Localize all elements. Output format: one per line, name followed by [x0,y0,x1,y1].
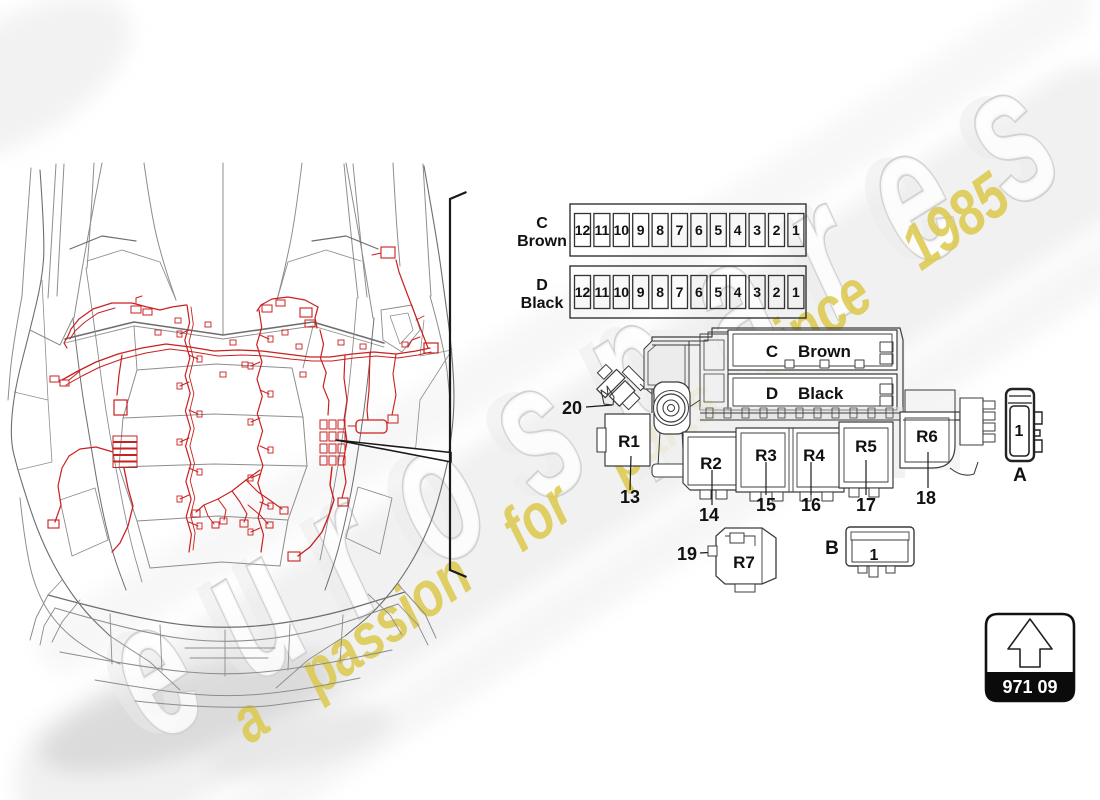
svg-text:Brown: Brown [517,233,567,250]
svg-text:R1: R1 [618,432,640,451]
svg-text:Black: Black [798,384,844,403]
svg-text:5: 5 [714,222,722,238]
svg-text:Brown: Brown [798,342,851,361]
svg-text:2: 2 [773,284,781,300]
svg-text:19: 19 [677,544,697,564]
svg-text:8: 8 [656,284,664,300]
svg-text:4: 4 [734,222,742,238]
svg-text:18: 18 [916,488,936,508]
svg-text:6: 6 [695,284,703,300]
svg-text:11: 11 [594,284,609,300]
svg-text:7: 7 [676,284,684,300]
svg-text:5: 5 [714,284,722,300]
svg-text:3: 3 [753,222,761,238]
svg-text:A: A [1013,465,1027,486]
svg-text:1: 1 [792,284,800,300]
svg-text:14: 14 [699,505,719,525]
svg-text:4: 4 [734,284,742,300]
svg-text:7: 7 [676,222,684,238]
svg-text:C: C [536,215,548,232]
svg-text:R2: R2 [700,454,722,473]
svg-text:1: 1 [870,547,879,564]
svg-text:R5: R5 [855,437,877,456]
svg-text:2: 2 [773,222,781,238]
svg-text:9: 9 [637,222,645,238]
svg-text:11: 11 [594,222,609,238]
svg-text:1: 1 [792,222,800,238]
svg-text:D: D [766,384,778,403]
svg-text:10: 10 [614,284,630,300]
svg-text:D: D [536,277,548,294]
svg-text:12: 12 [575,222,591,238]
svg-text:C: C [766,342,778,361]
svg-text:15: 15 [756,495,776,515]
svg-text:1: 1 [1015,423,1024,440]
svg-text:B: B [825,538,839,559]
svg-text:12: 12 [575,284,591,300]
svg-text:16: 16 [801,495,821,515]
svg-text:17: 17 [856,495,876,515]
svg-text:6: 6 [695,222,703,238]
svg-text:971 09: 971 09 [1002,677,1057,697]
svg-text:9: 9 [637,284,645,300]
svg-text:Black: Black [521,295,564,312]
svg-text:10: 10 [614,222,630,238]
svg-text:R4: R4 [803,446,825,465]
svg-text:R7: R7 [733,553,755,572]
svg-text:8: 8 [656,222,664,238]
svg-text:3: 3 [753,284,761,300]
svg-text:20: 20 [562,398,582,418]
svg-text:R6: R6 [916,427,938,446]
